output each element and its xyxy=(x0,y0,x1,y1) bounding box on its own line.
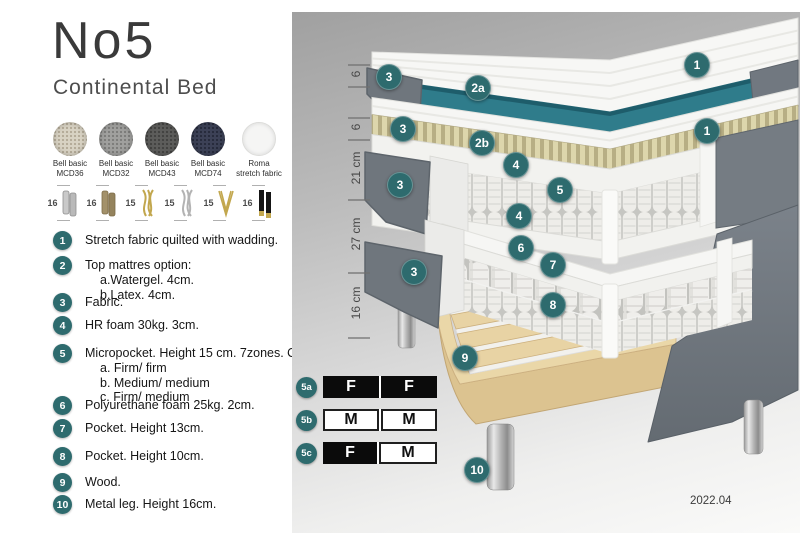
list-item-number: 4 xyxy=(53,316,72,335)
leg-height-label: 15 xyxy=(164,198,174,208)
leg-height-label: 15 xyxy=(203,198,213,208)
fabric-swatch-label: Bell basicMCD36 xyxy=(48,159,92,179)
page-title: No5 xyxy=(52,14,156,69)
page-subtitle: Continental Bed xyxy=(53,76,217,100)
infographic-page: No5 Continental Bed Bell basicMCD36 Bell… xyxy=(0,0,800,533)
tick-line xyxy=(252,185,265,186)
diagram-badge: 10 xyxy=(464,457,490,483)
list-item: 8 Pocket. Height 10cm. xyxy=(53,447,204,466)
list-item-text: Pocket. Height 13cm. xyxy=(85,421,204,436)
fabric-name: Bell basic xyxy=(191,159,225,168)
list-item-number: 7 xyxy=(53,419,72,438)
list-item-text: Top mattres option: xyxy=(85,258,194,273)
firmness-row: 5b M M xyxy=(296,409,437,431)
fabric-code: MCD74 xyxy=(194,169,221,178)
list-item: 1 Stretch fabric quilted with wadding. xyxy=(53,231,278,250)
fabric-swatch: Bell basicMCD43 xyxy=(140,122,184,179)
list-item-number: 9 xyxy=(53,473,72,492)
dimension-label: 6 xyxy=(349,44,363,104)
list-item-subtext: a.Watergel. 4cm. xyxy=(100,273,194,288)
list-item-number: 6 xyxy=(53,396,72,415)
leg-height-label: 16 xyxy=(47,198,57,208)
fabric-swatch: Bell basicMCD32 xyxy=(94,122,138,179)
fabric-swatch-icon xyxy=(242,122,276,156)
leg-option: 16 xyxy=(83,184,122,222)
list-item-number: 1 xyxy=(53,231,72,250)
fabric-swatch: Bell basicMCD36 xyxy=(48,122,92,179)
tick-line xyxy=(135,220,148,221)
fabric-code: MCD36 xyxy=(56,169,83,178)
diagram-badge: 7 xyxy=(540,252,566,278)
leg-option: 15 xyxy=(122,184,161,222)
list-item-number: 3 xyxy=(53,293,72,312)
fabric-code: MCD32 xyxy=(102,169,129,178)
leg-icon-cylinder-bronze xyxy=(99,188,119,218)
list-item: 4 HR foam 30kg. 3cm. xyxy=(53,316,199,335)
list-item-number: 5 xyxy=(53,344,72,363)
fabric-swatch-icon xyxy=(191,122,225,156)
metal-leg-front xyxy=(487,424,514,490)
list-item-number: 8 xyxy=(53,447,72,466)
list-item: 10 Metal leg. Height 16cm. xyxy=(53,495,216,514)
fabric-swatch-label: Bell basicMCD43 xyxy=(140,159,184,179)
leg-icon-cylinder-silver xyxy=(60,188,80,218)
fabric-swatch-label: Bell basicMCD74 xyxy=(186,159,230,179)
fabric-name: Bell basic xyxy=(145,159,179,168)
leg-height-label: 15 xyxy=(125,198,135,208)
firmness-cell: F xyxy=(381,376,437,398)
diagram-badge: 3 xyxy=(401,259,427,285)
firmness-cells: M M xyxy=(323,409,437,431)
tick-line xyxy=(252,220,265,221)
list-item: 6 Polyurethane foam 25kg. 2cm. xyxy=(53,396,255,415)
fabric-swatches: Bell basicMCD36 Bell basicMCD32 Bell bas… xyxy=(48,122,286,179)
tick-line xyxy=(135,185,148,186)
list-item: 9 Wood. xyxy=(53,473,121,492)
firmness-cell: M xyxy=(381,409,437,431)
tick-line xyxy=(213,220,226,221)
diagram-badge: 8 xyxy=(540,292,566,318)
dimension-label: 21 cm xyxy=(349,138,363,198)
leg-icon-hairpin-gold xyxy=(216,188,236,218)
leg-height-label: 16 xyxy=(242,198,252,208)
diagram-badge: 1 xyxy=(684,52,710,78)
firmness-cell: F xyxy=(323,442,377,464)
firmness-row-label: 5b xyxy=(296,410,317,431)
leg-icon-black-gold-tip xyxy=(255,188,275,218)
fabric-swatch-icon xyxy=(53,122,87,156)
diagram-badge: 1 xyxy=(694,118,720,144)
list-item: 7 Pocket. Height 13cm. xyxy=(53,419,204,438)
leg-height-label: 16 xyxy=(86,198,96,208)
diagram-badge: 6 xyxy=(508,235,534,261)
dimension-label: 27 cm xyxy=(349,204,363,264)
tick-line xyxy=(96,220,109,221)
firmness-cell: M xyxy=(323,409,379,431)
firmness-cell: F xyxy=(323,376,379,398)
leg-option: 16 xyxy=(44,184,83,222)
fabric-name: Bell basic xyxy=(53,159,87,168)
list-item-text: Wood. xyxy=(85,475,121,490)
tick-line xyxy=(174,220,187,221)
fabric-swatch: Bell basicMCD74 xyxy=(186,122,230,179)
bed-diagram-panel: 6 6 21 cm 27 cm 16 cm 1 3 2a 3 2b 1 4 5 … xyxy=(292,12,800,533)
list-item-number: 10 xyxy=(53,495,72,514)
fabric-name: Roma xyxy=(248,159,269,168)
diagram-badge: 9 xyxy=(452,345,478,371)
list-item-number: 2 xyxy=(53,256,72,275)
diagram-badge: 5 xyxy=(547,177,573,203)
firmness-cells: F M xyxy=(323,442,437,464)
dimension-label: 16 cm xyxy=(349,273,363,333)
firmness-cells: F F xyxy=(323,376,437,398)
list-item-text: HR foam 30kg. 3cm. xyxy=(85,318,199,333)
list-item-text: Stretch fabric quilted with wadding. xyxy=(85,233,278,248)
firmness-cell: M xyxy=(379,442,437,464)
version-label: 2022.04 xyxy=(690,495,732,507)
leg-option: 15 xyxy=(200,184,239,222)
fabric-code: MCD43 xyxy=(148,169,175,178)
list-item-text: Metal leg. Height 16cm. xyxy=(85,497,216,512)
fabric-swatch-label: Romastretch fabric xyxy=(232,159,286,179)
diagram-badge: 3 xyxy=(390,116,416,142)
leg-icon-twisted-gold xyxy=(138,188,158,218)
leg-option: 15 xyxy=(161,184,200,222)
fabric-name: Bell basic xyxy=(99,159,133,168)
leg-options: 16 16 15 15 15 xyxy=(44,184,278,222)
tick-line xyxy=(57,220,70,221)
tick-line xyxy=(174,185,187,186)
diagram-badge: 2b xyxy=(469,130,495,156)
diagram-badge: 2a xyxy=(465,75,491,101)
firmness-row-label: 5a xyxy=(296,377,317,398)
tick-line xyxy=(96,185,109,186)
tick-line xyxy=(57,185,70,186)
list-item-text: Pocket. Height 10cm. xyxy=(85,449,204,464)
tick-line xyxy=(213,185,226,186)
metal-leg-right xyxy=(744,400,763,454)
fabric-swatch: Romastretch fabric xyxy=(232,122,286,179)
list-item-text: Fabric. xyxy=(85,295,123,310)
leg-icon-twisted-silver xyxy=(177,188,197,218)
diagram-badge: 3 xyxy=(376,64,402,90)
fabric-code: stretch fabric xyxy=(236,169,282,178)
firmness-row: 5a F F xyxy=(296,376,437,398)
list-item: 3 Fabric. xyxy=(53,293,123,312)
fabric-swatch-label: Bell basicMCD32 xyxy=(94,159,138,179)
diagram-badge: 4 xyxy=(506,203,532,229)
fabric-swatch-icon xyxy=(99,122,133,156)
firmness-row: 5c F M xyxy=(296,442,437,464)
fabric-swatch-icon xyxy=(145,122,179,156)
leg-option: 16 xyxy=(239,184,278,222)
diagram-badge: 3 xyxy=(387,172,413,198)
diagram-badge: 4 xyxy=(503,152,529,178)
list-item-text: Polyurethane foam 25kg. 2cm. xyxy=(85,398,255,413)
firmness-row-label: 5c xyxy=(296,443,317,464)
